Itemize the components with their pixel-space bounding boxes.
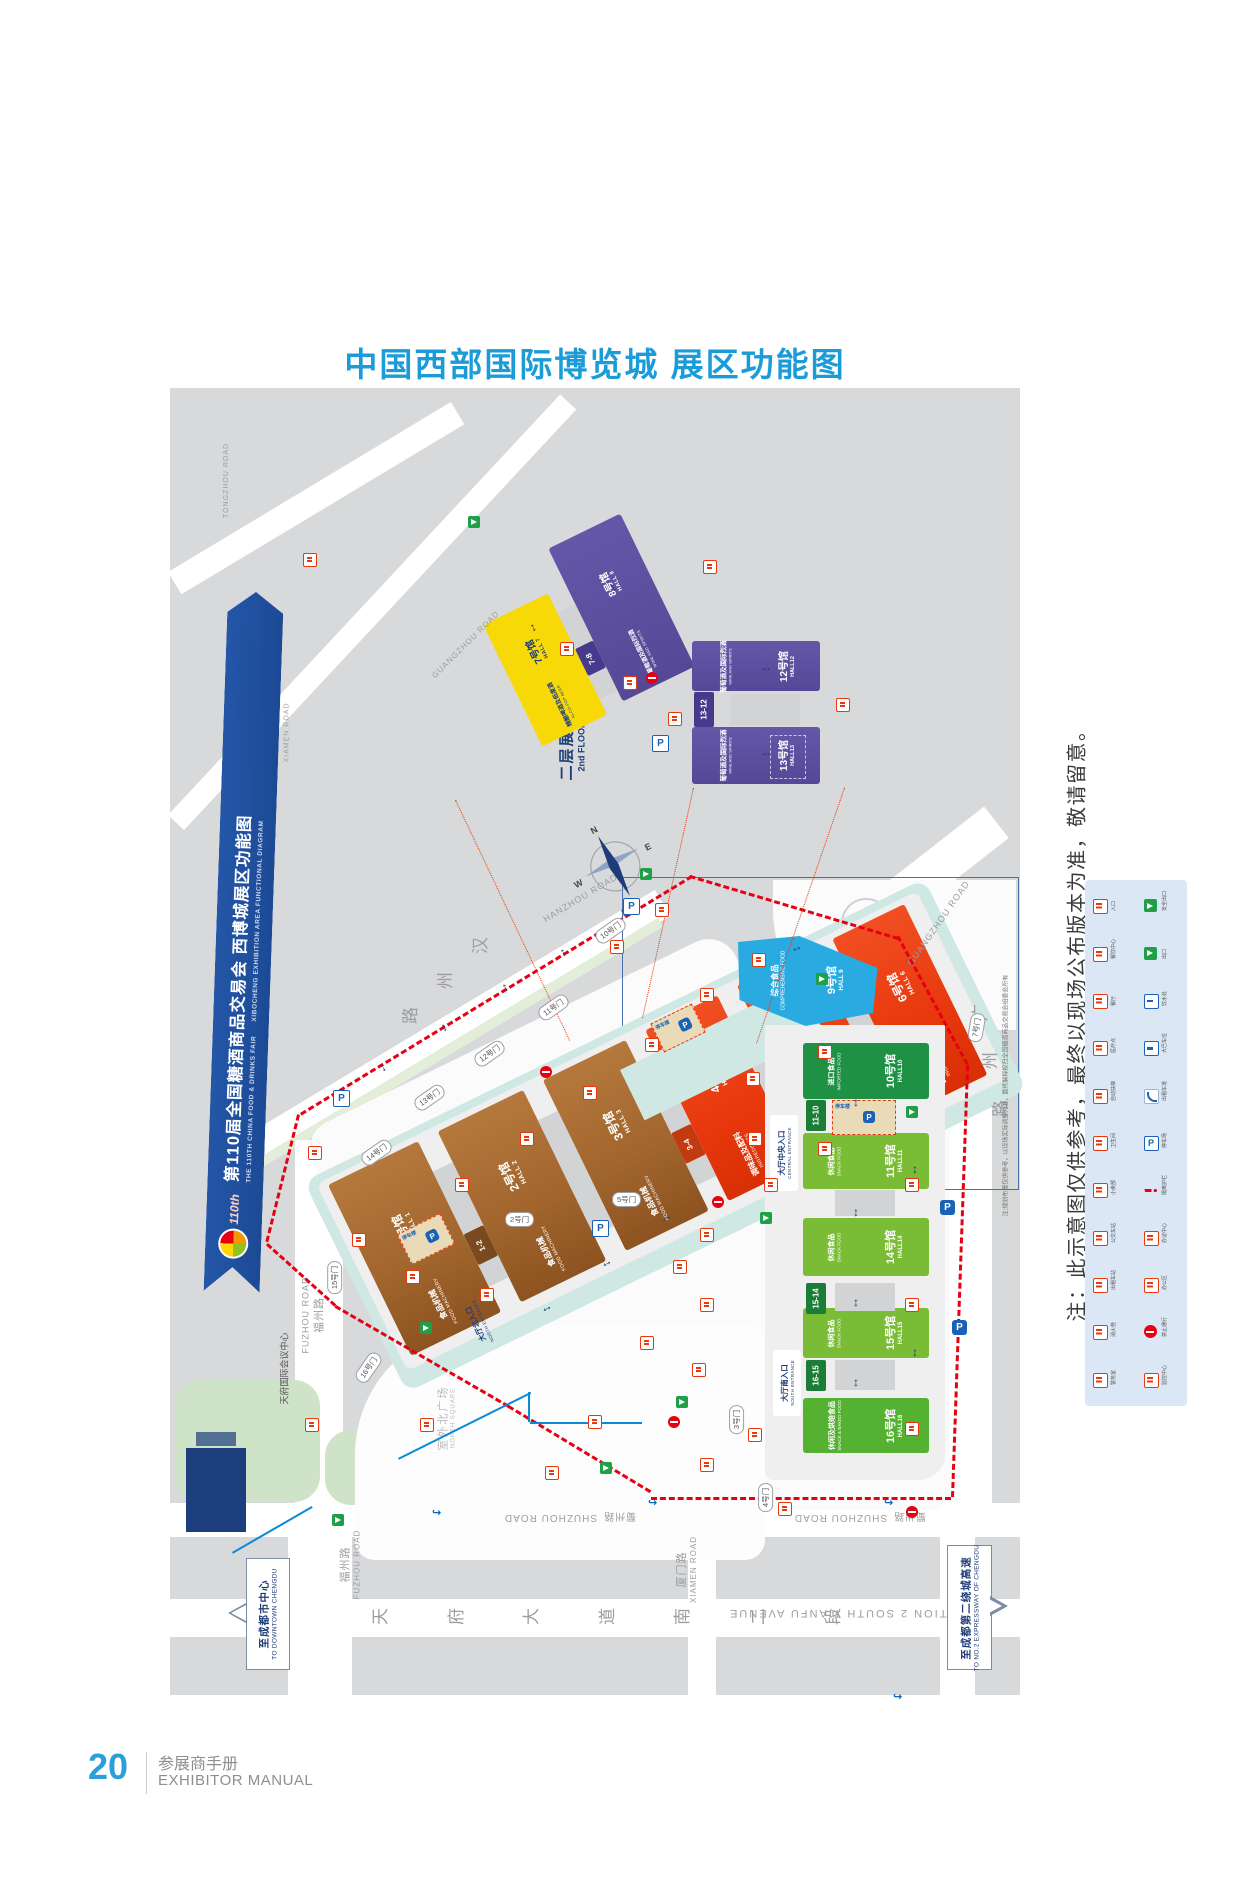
hall-category-cn: 休闲食品 (826, 1318, 836, 1348)
north-entrance-label: 大厅北入口 NORTH ENTRANCE (465, 1293, 491, 1353)
connector-label: 3-4 (681, 1137, 695, 1150)
gate-g15: 15号门 (327, 1261, 342, 1294)
connector-label: 13-12 (694, 705, 714, 714)
legend-item: 卫生间 (1088, 1122, 1134, 1164)
legend-label: 饮水处 (1163, 966, 1169, 1006)
parking-icon: P (424, 1228, 440, 1244)
legend-label: 自动扶梯 (1112, 1061, 1118, 1101)
legend-item: 入口 (1088, 885, 1134, 927)
nav-arrow-icon: ↕ (912, 1162, 918, 1176)
legend-item: 安全出口 (1139, 885, 1185, 927)
legend-item: 禁止通行 (1139, 1311, 1185, 1353)
facility-icon (560, 642, 574, 656)
ramp-arrow-icon: ↪ (893, 1690, 902, 1703)
legend-red-icon (1093, 1231, 1108, 1246)
legend-label: 出租车道 (1163, 1061, 1169, 1101)
hall-h16-category: 休闲及烘焙食品SNACK & BAKED FOOD (811, 1398, 857, 1453)
legend-label: 办公区 (1163, 1250, 1169, 1290)
facility-icon (700, 1228, 714, 1242)
map-element: 15号馆HALL15 (882, 1316, 904, 1350)
legend-label: 出口 (1163, 919, 1169, 959)
legend-item: P停车场 (1139, 1122, 1185, 1164)
facility-icon (746, 1072, 760, 1086)
nav-arrow-icon: ↕ (853, 1205, 859, 1219)
legend-item: 出租车道 (1139, 1075, 1185, 1117)
facility-icon (420, 1418, 434, 1432)
facility-icon (655, 903, 669, 917)
legend-red-icon (1144, 1278, 1159, 1293)
legend-bluep-icon: P (1144, 1136, 1159, 1151)
facility-icon (545, 1466, 559, 1480)
no-entry-icon (540, 1066, 552, 1078)
page-title: 中国西部国际博览城 展区功能图 (170, 338, 1020, 386)
direction-box-expressway: 至成都第二绕城高速 TO NO.2 EXPRESSWAY OF CHENGDU (947, 1545, 992, 1670)
legend-line-icon (1144, 1189, 1157, 1192)
exit-icon (760, 1212, 772, 1224)
connector-c1615: 16-15 (806, 1360, 826, 1391)
map-element: 葡萄酒及国际烈酒WINE AND SPIRITS (718, 730, 733, 782)
blue-fence-line (528, 1392, 530, 1422)
hall-number: 16号馆 (882, 1408, 898, 1442)
map-legend: 入口安全出口餐饮中心出口餐厅饮水处医疗点大巴车位自动扶梯出租车道卫生间P停车场小… (1085, 880, 1187, 1406)
connector-c1110: 11-10 (806, 1100, 826, 1131)
red-dashed-boundary (651, 1497, 951, 1500)
hall-number: 10号馆 (882, 1054, 898, 1088)
fair-logo: 110th (218, 1194, 250, 1259)
legend-item: 大巴车位 (1139, 1027, 1185, 1069)
facility-icon (583, 1086, 597, 1100)
legend-red-icon (1093, 1183, 1108, 1198)
ramp-arrow-icon: ↪ (884, 1496, 893, 1509)
direction-box-downtown: 至成都市中心 TO DOWNTOWN CHENGDU (246, 1558, 290, 1670)
facility-icon (905, 1298, 919, 1312)
legend-item: 餐饮中心 (1088, 933, 1134, 975)
map-element: 休闲食品SNACK FOOD (826, 1232, 841, 1262)
facility-icon (406, 1270, 420, 1284)
connector-label: 3-4 (682, 1137, 695, 1151)
map-element: 16号馆HALL16 (882, 1408, 904, 1442)
footer-title-cn: 参展商手册 (158, 1750, 238, 1774)
footer-title-en: EXHIBITOR MANUAL (158, 1772, 313, 1789)
exit-icon (906, 1106, 918, 1118)
map-element: 6号馆HALL 6 (882, 967, 917, 1005)
exit-icon (816, 973, 828, 985)
legend-label: 大巴车位 (1163, 1013, 1169, 1053)
facility-icon (308, 1146, 322, 1160)
city-block (352, 1637, 688, 1695)
hall-category-cn: 葡萄酒及国际烈酒 (718, 730, 728, 782)
legend-red-icon (1093, 994, 1108, 1009)
road-label-xiamen-west: XIAMEN ROAD (278, 690, 296, 774)
legend-red-icon (1093, 1278, 1108, 1293)
legend-label: 小卖部 (1112, 1155, 1118, 1195)
facility-icon (588, 1415, 602, 1429)
road-label-fuzhou-upper: FUZHOU ROAD 福州路 (296, 1240, 330, 1390)
map-element: 葡萄酒及国际烈酒WINE AND SPIRITS (626, 626, 660, 675)
legend-red-icon (1093, 1041, 1108, 1056)
legend-red-icon (1093, 1089, 1108, 1104)
facility-icon (700, 1458, 714, 1472)
legend-item: 消火栓 (1088, 1311, 1134, 1353)
legend-item: 办公区 (1139, 1264, 1185, 1306)
map-element: 3号馆HALL 3 (598, 1106, 633, 1144)
facility-icon (303, 553, 317, 567)
hall-name-en: HALL16 (898, 1408, 904, 1442)
map-element: 7号馆HALL 7 (521, 635, 551, 667)
legend-item: 办证中心 (1139, 1217, 1185, 1259)
legend-green-icon (1144, 899, 1157, 912)
legend-label: 消火栓 (1112, 1297, 1118, 1337)
exit-icon (420, 1322, 432, 1334)
facility-icon (905, 1178, 919, 1192)
legend-item: 警务室 (1088, 1359, 1134, 1401)
hall-category-en: SNACK FOOD (836, 1318, 841, 1348)
facility-icon (668, 712, 682, 726)
hall-number: 11号馆 (882, 1144, 898, 1178)
gate-g3: 3号门 (729, 1405, 744, 1434)
connector-label: 13-12 (700, 699, 709, 719)
no-entry-icon (646, 672, 658, 684)
exit-icon (332, 1514, 344, 1526)
nav-arrow-icon: ↕ (853, 1375, 859, 1389)
legend-label: 医疗点 (1112, 1013, 1118, 1053)
facility-icon (818, 1142, 832, 1156)
legend-item: 隔离护栏 (1139, 1169, 1185, 1211)
legend-red-icon (1144, 1231, 1159, 1246)
hall-category-cn: 休闲及烘焙食品 (827, 1400, 837, 1451)
connector-label: 11-10 (812, 1105, 821, 1125)
hall-bridge (730, 694, 800, 725)
hall-category-en: WINE AND SPIRITS (728, 640, 733, 692)
legend-item: 小卖部 (1088, 1169, 1134, 1211)
facility-icon (352, 1233, 366, 1247)
legend-item: 出口 (1139, 933, 1185, 975)
facility-icon (692, 1363, 706, 1377)
legend-label: 办证中心 (1163, 1203, 1169, 1243)
gate-g2: 2号门 (505, 1212, 534, 1227)
compass-w: W (572, 877, 584, 890)
gate-g4: 4号门 (758, 1483, 773, 1512)
map-element: 11号馆HALL11 (882, 1144, 904, 1178)
fair-logo-text: 110th (227, 1194, 242, 1225)
direction-arrow-right-icon (987, 1598, 1002, 1614)
compass-n: N (589, 824, 599, 836)
legend-red-icon (1093, 947, 1108, 962)
parking-icon: P (333, 1090, 350, 1107)
facility-icon (520, 1132, 534, 1146)
connector-label: 16-15 (806, 1371, 826, 1380)
legend-red-icon (1093, 899, 1108, 914)
legend-noentry-icon (1144, 1325, 1157, 1338)
hall-category-cn: 休闲食品 (826, 1232, 836, 1262)
connector-label: 1-2 (474, 1239, 488, 1252)
legend-item: 饮水处 (1139, 980, 1185, 1022)
map-element: 休闲及烘焙食品SNACK & BAKED FOOD (827, 1400, 842, 1451)
parking-garage-icon: P (952, 1320, 967, 1335)
legend-label: 公交车站 (1112, 1203, 1118, 1243)
connector-label: 16-15 (812, 1365, 821, 1385)
map-element: 2号馆HALL 2 (494, 1156, 529, 1194)
road-char: 汉 (466, 937, 491, 954)
facility-icon (305, 1418, 319, 1432)
hall-h15-category: 休闲食品SNACK FOOD (811, 1308, 857, 1358)
no-entry-icon (906, 1506, 918, 1518)
compass-e: E (643, 841, 653, 853)
hall-bridge (835, 1190, 895, 1216)
parking-icon: P (677, 1016, 693, 1032)
facility-icon (700, 1298, 714, 1312)
road-char: 路 (396, 1007, 421, 1024)
manual-page: 中国西部国际博览城 展区功能图 (0, 0, 1260, 1890)
nav-arrow-icon: ↔ (760, 660, 772, 674)
legend-label: 出租车站 (1112, 1250, 1118, 1290)
hall-h10-title: 10号馆HALL10 (867, 1043, 919, 1099)
city-block (716, 1637, 940, 1695)
footer-divider (146, 1752, 147, 1794)
facility-icon (752, 953, 766, 967)
facility-icon (623, 676, 637, 690)
fair-logo-icon (218, 1228, 249, 1259)
conference-center-label: 天府国际会议中心 (274, 1288, 294, 1448)
hall-category-en: SNACK FOOD (836, 1232, 841, 1262)
legend-label: 入口 (1112, 871, 1118, 911)
connector-c1312: 13-12 (694, 692, 714, 727)
legend-red-icon (1093, 1136, 1108, 1151)
facility-icon (764, 1178, 778, 1192)
map-disclaimer-note: 注:规划布置仅供参考，以现场实际调整为准，最终解释权归全国糖酒商品交易会组委会所… (996, 905, 1014, 1285)
exit-icon (600, 1462, 612, 1474)
page-number: 20 (88, 1746, 128, 1788)
legend-label: 餐厅 (1112, 966, 1118, 1006)
road-label-xiamen-lower: 厦门路 XIAMEN ROAD (668, 1536, 702, 1602)
legend-swoosh-icon (1144, 1089, 1159, 1104)
ramp-arrow-icon: ↪ (648, 1496, 657, 1509)
legend-item: 医疗点 (1088, 1027, 1134, 1069)
map-element: 食品机械FOOD MACHINERY (422, 1276, 459, 1328)
hall-h12: 葡萄酒及国际烈酒WINE AND SPIRITS12号馆HALL12 (692, 641, 820, 691)
page-footer: 20 参展商手册 EXHIBITOR MANUAL (88, 1746, 488, 1806)
legend-label: 安全出口 (1163, 871, 1169, 911)
no-entry-icon (712, 1196, 724, 1208)
facility-icon (455, 1178, 469, 1192)
map-element: 食品机械FOOD MACHINERY (530, 1224, 567, 1276)
legend-item: 公交车站 (1088, 1217, 1134, 1259)
conference-center-building (186, 1448, 246, 1532)
facility-icon (703, 560, 717, 574)
legend-green-icon (1144, 947, 1157, 960)
facility-icon (905, 1422, 919, 1436)
facility-icon (645, 1038, 659, 1052)
road-label-tianfu-en: SECTION 2 SOUTH TIANFU AVENUE (728, 1607, 975, 1619)
exit-icon (640, 868, 652, 880)
parking-garage-icon: P (940, 1200, 955, 1215)
hall-number: 14号馆 (882, 1230, 898, 1264)
blue-fence-line (530, 1422, 642, 1424)
legend-item: 出租车站 (1088, 1264, 1134, 1306)
connector-label: 7-8 (584, 651, 597, 665)
parking-deck-block: 停车楼 P (832, 1100, 896, 1135)
legend-item: 自动扶梯 (1088, 1075, 1134, 1117)
parking-icon: P (863, 1111, 875, 1123)
hall-name-en: HALL12 (791, 650, 797, 681)
hall-name-en: HALL10 (898, 1054, 904, 1088)
legend-label: 餐饮中心 (1112, 919, 1118, 959)
facility-icon (673, 1260, 687, 1274)
hall-h13-category: 葡萄酒及国际烈酒WINE AND SPIRITS (700, 727, 750, 784)
north-square-label: 室外北广场 NORTH SQUARE (432, 1382, 458, 1454)
facility-icon (748, 1132, 762, 1146)
legend-label: 隔离护栏 (1163, 1155, 1169, 1195)
legend-red-icon (1093, 1373, 1108, 1388)
hall-name-en: HALL14 (898, 1230, 904, 1264)
legend-red-icon (1144, 1373, 1159, 1388)
gate-g5: 5号门 (612, 1192, 641, 1207)
connector-label: 11-10 (806, 1111, 826, 1120)
ramp-arrow-icon: ↪ (432, 1506, 441, 1519)
hall-h14-category: 休闲食品SNACK FOOD (811, 1218, 857, 1276)
nav-arrow-icon: ↔ (760, 745, 772, 759)
hall-number: 12号馆 (776, 650, 791, 681)
venue-map: 室外北广场 NORTH SQUARE 天府国际会议中心 N E S W 二层展区 (170, 388, 1020, 1698)
road-char: 州 (431, 972, 456, 989)
legend-label: 卫生间 (1112, 1108, 1118, 1148)
connector-label: 15-14 (806, 1294, 826, 1303)
legend-item: 监控中心 (1139, 1359, 1185, 1401)
nav-arrow-icon: ↕ (912, 1345, 918, 1359)
hall-bridge (835, 1283, 895, 1311)
map-element: 精酿啤酒及低度酒ALCO-POP BEER (545, 679, 579, 728)
hall-category-en: SNACK & BAKED FOOD (837, 1400, 842, 1451)
facility-icon (640, 1336, 654, 1350)
legend-item: 餐厅 (1088, 980, 1134, 1022)
map-element: 14号馆HALL14 (882, 1230, 904, 1264)
exit-icon (468, 516, 480, 528)
facility-icon (818, 1045, 832, 1059)
south-entrance-label: 大厅南入口 SOUTH ENTRANCE (773, 1350, 801, 1416)
facility-icon (778, 1502, 792, 1516)
hall-number: 15号馆 (882, 1316, 898, 1350)
map-element: 葡萄酒及国际烈酒WINE AND SPIRITS (718, 640, 733, 692)
facility-icon (748, 1428, 762, 1442)
road-label-fuzhou-lower: 福州路 FUZHOU ROAD (332, 1526, 366, 1602)
parking-icon: P (623, 898, 640, 915)
facility-icon (700, 988, 714, 1002)
hall-category-cn: 葡萄酒及国际烈酒 (718, 640, 728, 692)
connector-label: 15-14 (812, 1288, 821, 1308)
connector-label: 7-8 (583, 652, 597, 665)
hall-h13-subzone (770, 735, 806, 779)
legend-label: 监控中心 (1163, 1345, 1169, 1385)
road-label-tongzhou: TONGZHOU ROAD (218, 425, 236, 535)
conference-center-building (196, 1432, 236, 1446)
nav-arrow-icon: ↕ (853, 1095, 859, 1109)
connector-label: 1-2 (474, 1238, 487, 1252)
parking-icon: P (592, 1220, 609, 1237)
road-label-shuzhou-left: 蜀州路SHUZHOU ROAD (500, 1510, 640, 1525)
hall-category-en: IMPORTED FOOD (836, 1052, 841, 1090)
hall-category-en: SNACK FOOD (836, 1146, 841, 1176)
legend-blue-icon (1144, 1041, 1159, 1056)
legend-blue-icon (1144, 994, 1159, 1009)
hall-h15: 休闲食品SNACK FOOD15号馆HALL15 (803, 1308, 929, 1358)
facility-icon (836, 698, 850, 712)
map-element: 12号馆HALL12 (776, 650, 797, 681)
hall-h14: 休闲食品SNACK FOOD14号馆HALL14 (803, 1218, 929, 1276)
parking-icon: P (652, 735, 669, 752)
hall-bridge (835, 1360, 895, 1390)
no-entry-icon (668, 1416, 680, 1428)
facility-icon (480, 1288, 494, 1302)
map-element: 休闲食品SNACK FOOD (826, 1318, 841, 1348)
connector-c1514: 15-14 (806, 1283, 826, 1314)
legend-label: 停车场 (1163, 1108, 1169, 1148)
hall-h14-title: 14号馆HALL14 (867, 1218, 919, 1276)
map-element: 10号馆HALL10 (882, 1054, 904, 1088)
exit-icon (676, 1396, 688, 1408)
legend-label: 禁止通行 (1163, 1297, 1169, 1337)
hall-category-en: WINE AND SPIRITS (728, 730, 733, 782)
hall-h12-category: 葡萄酒及国际烈酒WINE AND SPIRITS (700, 641, 750, 691)
hall-name-en: HALL15 (898, 1316, 904, 1350)
legend-red-icon (1093, 1325, 1108, 1340)
hall-name-en: HALL11 (898, 1144, 904, 1178)
facility-icon (610, 940, 624, 954)
nav-arrow-icon: ↕ (853, 1295, 859, 1309)
direction-arrow-left-icon (231, 1605, 246, 1621)
legend-label: 警务室 (1112, 1345, 1118, 1385)
